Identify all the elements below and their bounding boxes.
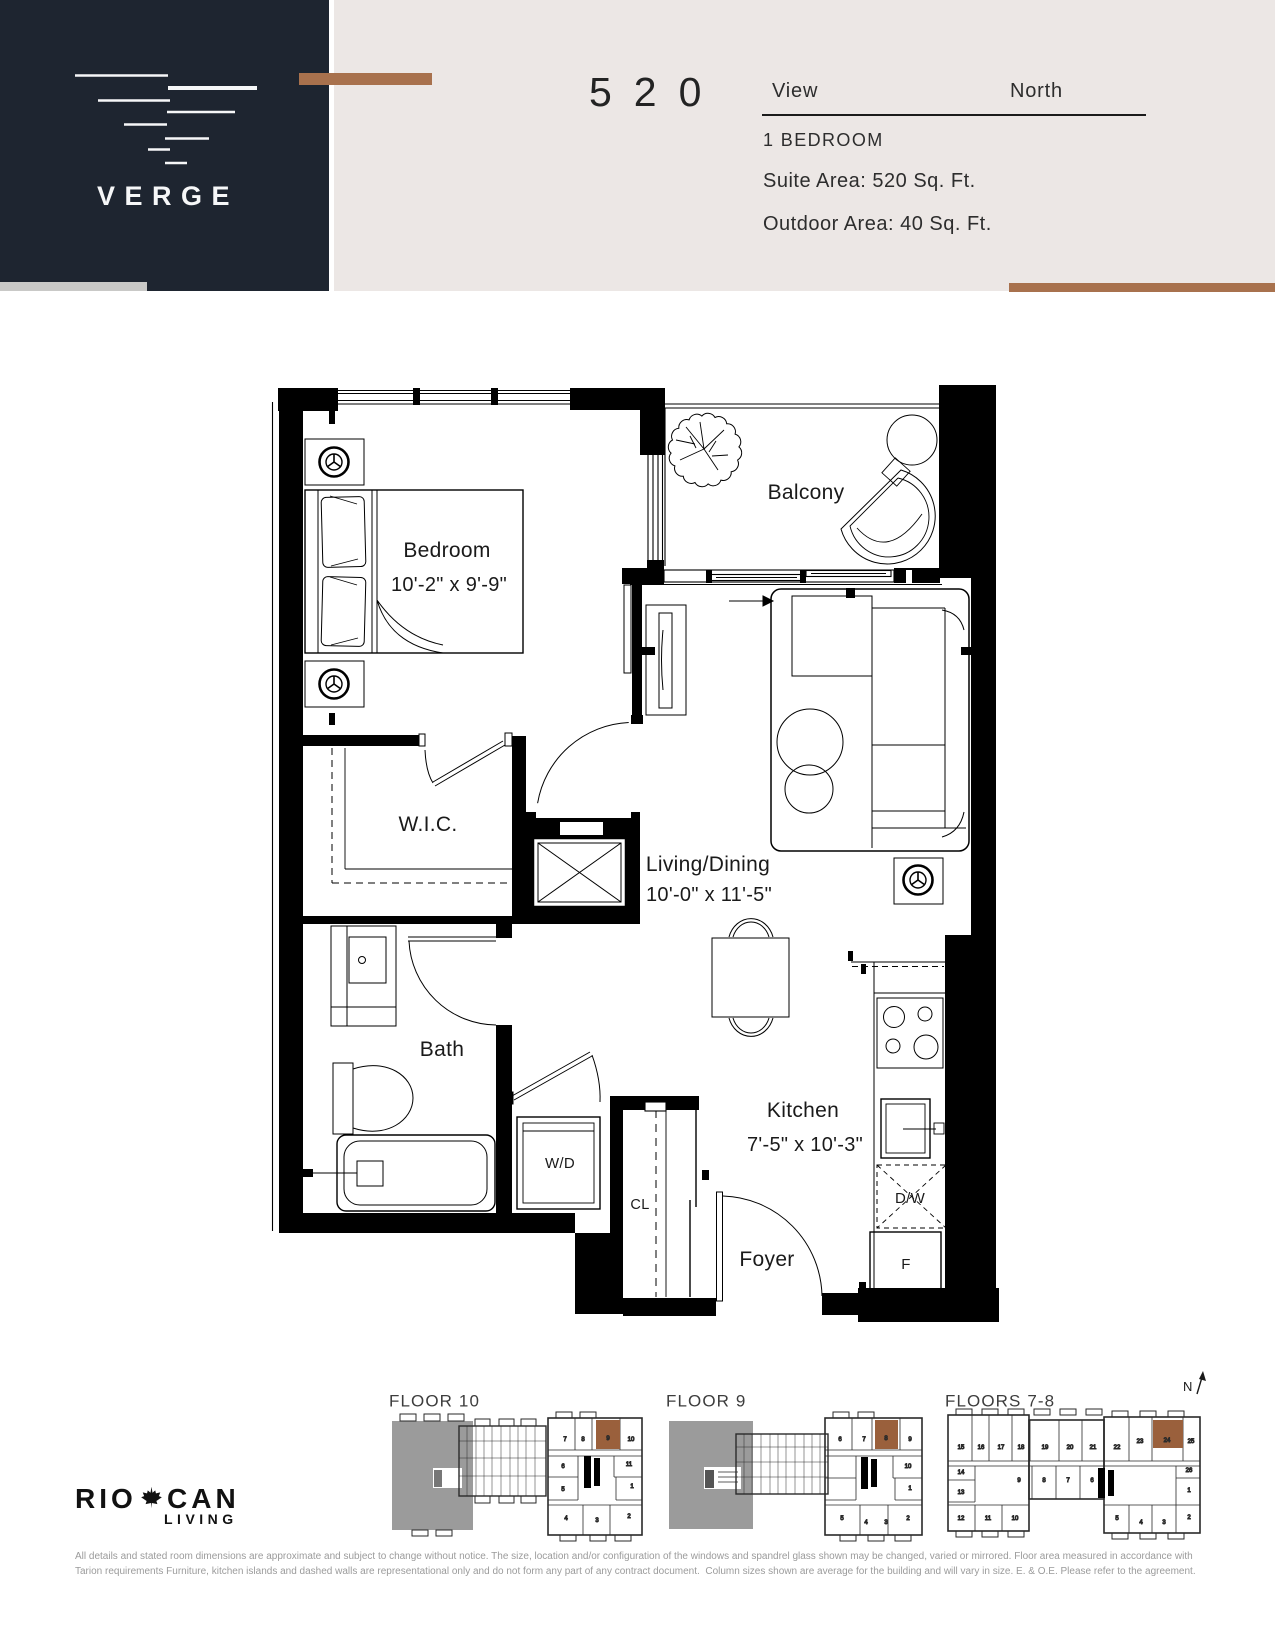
svg-text:N: N — [1183, 1379, 1192, 1394]
svg-text:6: 6 — [1090, 1478, 1094, 1484]
svg-text:4: 4 — [564, 1516, 568, 1522]
svg-text:Foyer: Foyer — [739, 1248, 794, 1271]
svg-text:9: 9 — [908, 1437, 912, 1443]
svg-text:15: 15 — [958, 1445, 965, 1451]
svg-text:5: 5 — [1115, 1516, 1119, 1522]
svg-text:2: 2 — [906, 1516, 910, 1522]
svg-text:26: 26 — [1186, 1468, 1193, 1474]
svg-text:10: 10 — [628, 1437, 635, 1443]
svg-text:2: 2 — [627, 1514, 631, 1520]
svg-text:1: 1 — [1187, 1488, 1191, 1494]
svg-text:22: 22 — [1114, 1445, 1121, 1451]
svg-text:10'-2" x 9'-9": 10'-2" x 9'-9" — [391, 574, 507, 596]
svg-text:24: 24 — [1164, 1438, 1171, 1444]
svg-text:10: 10 — [905, 1464, 912, 1470]
svg-text:18: 18 — [1018, 1445, 1025, 1451]
svg-text:8: 8 — [1042, 1478, 1046, 1484]
svg-text:5: 5 — [561, 1487, 565, 1493]
svg-text:20: 20 — [1067, 1445, 1074, 1451]
svg-text:12: 12 — [958, 1516, 965, 1522]
svg-text:16: 16 — [978, 1445, 985, 1451]
svg-text:7: 7 — [1066, 1478, 1070, 1484]
svg-text:FLOOR 10: FLOOR 10 — [389, 1392, 480, 1411]
svg-text:1: 1 — [630, 1484, 634, 1490]
svg-text:13: 13 — [958, 1490, 965, 1496]
svg-text:4: 4 — [1139, 1520, 1143, 1526]
svg-text:21: 21 — [1090, 1445, 1097, 1451]
svg-text:5: 5 — [840, 1516, 844, 1522]
svg-text:Kitchen: Kitchen — [767, 1099, 839, 1122]
svg-text:W/D: W/D — [545, 1155, 575, 1172]
svg-text:17: 17 — [998, 1445, 1005, 1451]
svg-text:Bedroom: Bedroom — [403, 539, 490, 562]
svg-text:7: 7 — [862, 1437, 866, 1443]
svg-text:25: 25 — [1188, 1439, 1195, 1445]
svg-text:D/W: D/W — [895, 1190, 926, 1207]
svg-text:FLOOR 9: FLOOR 9 — [666, 1392, 746, 1411]
svg-text:7'-5" x 10'-3": 7'-5" x 10'-3" — [747, 1134, 863, 1156]
svg-text:6: 6 — [838, 1437, 842, 1443]
svg-text:F: F — [901, 1256, 910, 1273]
svg-text:19: 19 — [1042, 1445, 1049, 1451]
svg-text:W.I.C.: W.I.C. — [399, 813, 458, 836]
svg-text:Bath: Bath — [420, 1038, 464, 1061]
svg-text:7: 7 — [563, 1437, 567, 1443]
svg-text:3: 3 — [1162, 1520, 1166, 1526]
svg-text:CL: CL — [630, 1197, 649, 1213]
svg-text:2: 2 — [1187, 1515, 1191, 1521]
svg-text:9: 9 — [1017, 1478, 1021, 1484]
svg-text:1: 1 — [908, 1486, 912, 1492]
svg-text:3: 3 — [595, 1518, 599, 1524]
svg-text:6: 6 — [561, 1464, 565, 1470]
svg-text:8: 8 — [581, 1437, 585, 1443]
svg-text:FLOORS 7-8: FLOORS 7-8 — [945, 1392, 1055, 1411]
svg-text:10: 10 — [1012, 1516, 1019, 1522]
svg-text:23: 23 — [1137, 1439, 1144, 1445]
svg-text:14: 14 — [958, 1470, 965, 1476]
svg-text:10'-0" x 11'-5": 10'-0" x 11'-5" — [646, 884, 772, 906]
svg-text:Living/Dining: Living/Dining — [646, 853, 770, 876]
svg-text:11: 11 — [985, 1516, 992, 1522]
svg-text:11: 11 — [626, 1462, 633, 1468]
svg-text:Balcony: Balcony — [768, 481, 845, 504]
svg-text:4: 4 — [864, 1520, 868, 1526]
